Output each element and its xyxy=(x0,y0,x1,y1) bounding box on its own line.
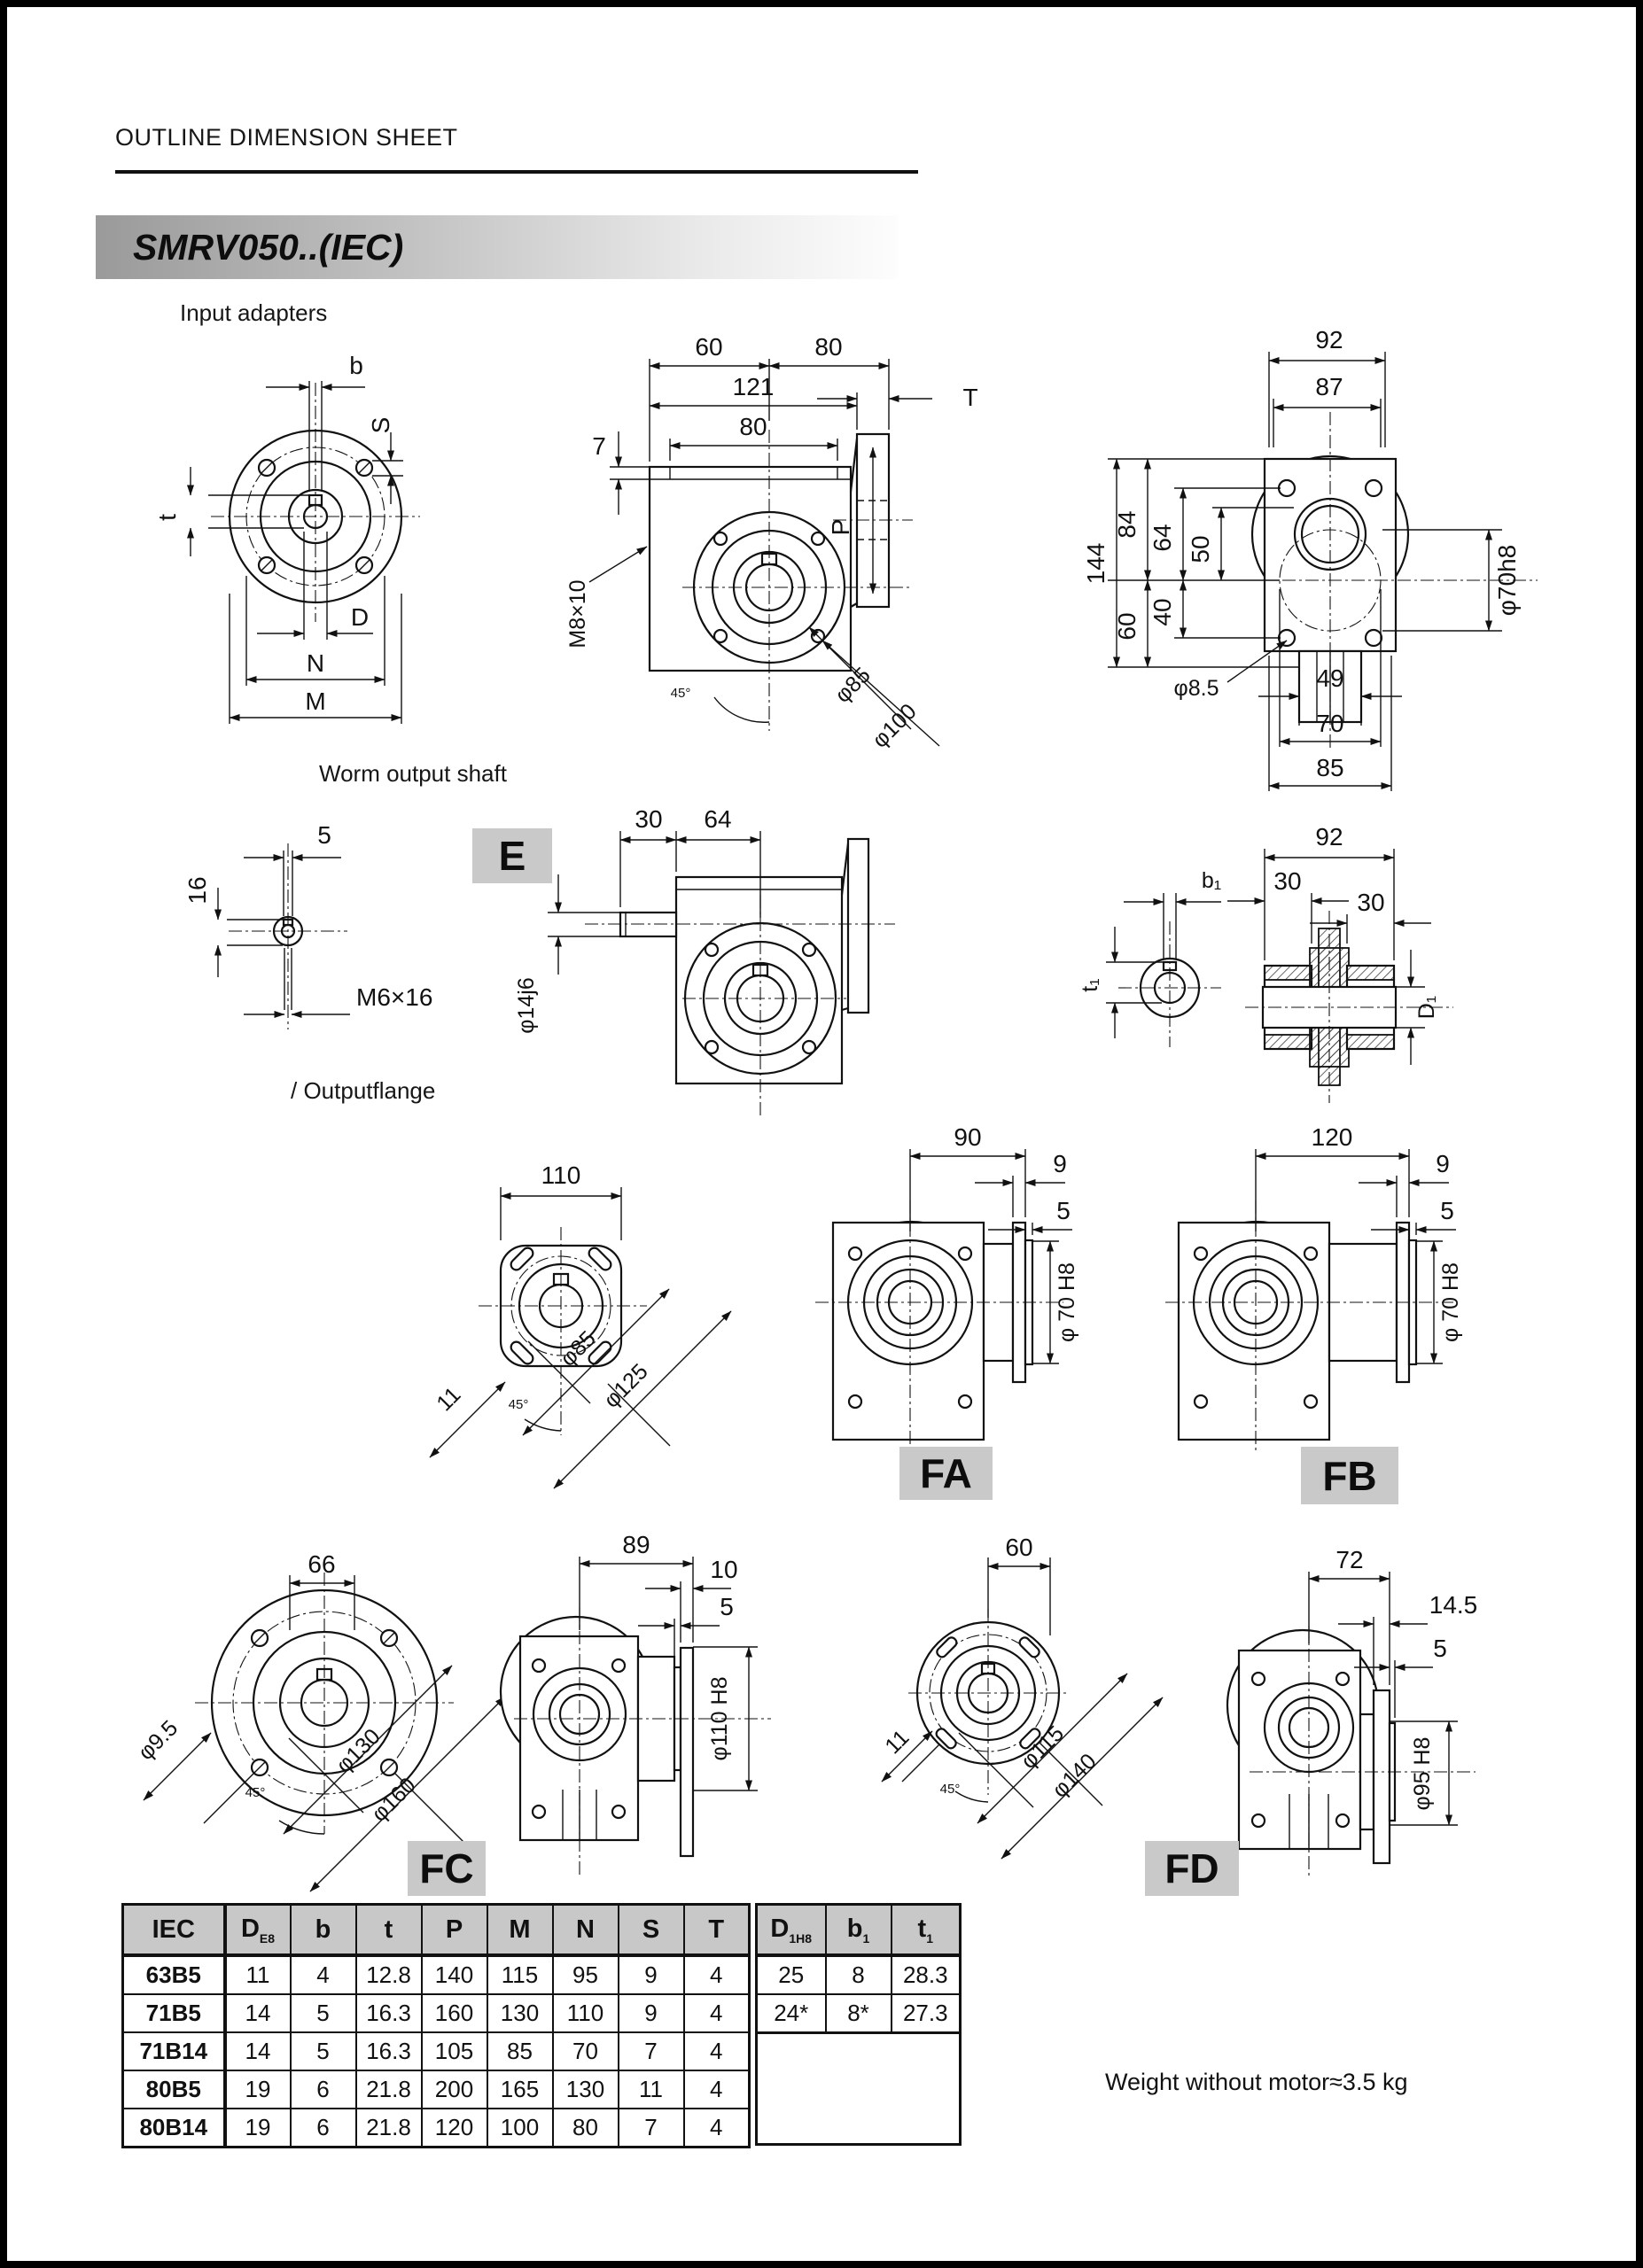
dim-phi70h8-fa: φ 70 H8 xyxy=(1055,1262,1079,1342)
cell: 9 xyxy=(619,1994,684,2032)
cell: 4 xyxy=(684,1955,750,1994)
cell: 7 xyxy=(619,2109,684,2148)
table-row: 71B5 14 5 16.3 160 130 110 9 4 xyxy=(123,1994,750,2032)
dim-84: 84 xyxy=(1113,510,1141,538)
cell: 27.3 xyxy=(892,1994,961,2033)
title-underline xyxy=(115,170,918,174)
fd-front-geometry xyxy=(908,1609,1068,1795)
dim-phi70h8-fb: φ 70 H8 xyxy=(1438,1262,1463,1342)
cell: 115 xyxy=(487,1955,553,1994)
col-p: P xyxy=(422,1905,487,1956)
dim-T: T xyxy=(962,384,977,411)
coupling-drawing: b₁ t₁ 92 30 xyxy=(1081,815,1604,1099)
dim-5-fd: 5 xyxy=(1433,1635,1447,1662)
cell: 21.8 xyxy=(356,2070,422,2109)
dim-t1: t₁ xyxy=(1078,978,1102,991)
cell: 16.3 xyxy=(356,1994,422,2032)
table-row: 63B5 11 4 12.8 140 115 95 9 4 xyxy=(123,1955,750,1994)
dim-10-fc: 10 xyxy=(710,1556,737,1583)
dim-7: 7 xyxy=(592,432,606,460)
worm-shaft-end-dimensions: 5 16 M6×16 xyxy=(183,821,432,1014)
cell: 8 xyxy=(826,1955,892,1994)
section-output-flange: / Outputflange xyxy=(291,1077,435,1105)
dim-s: S xyxy=(367,417,394,434)
dim-45deg-fd: 45° xyxy=(940,1782,961,1797)
dim-60-rear: 60 xyxy=(1113,612,1141,640)
dim-144: 144 xyxy=(1082,543,1110,585)
dim-30-right: 30 xyxy=(1357,889,1384,916)
col-d-e8: DE8 xyxy=(225,1905,291,1956)
cell: 28.3 xyxy=(892,1955,961,1994)
dim-m8x10: M8×10 xyxy=(565,579,590,648)
cell: 120 xyxy=(422,2109,487,2148)
cell: 24* xyxy=(757,1994,826,2033)
weight-note: Weight without motor≈3.5 kg xyxy=(1105,2069,1407,2096)
cell: 105 xyxy=(422,2032,487,2070)
cell-iec: 63B5 xyxy=(123,1955,225,1994)
dim-40: 40 xyxy=(1149,598,1176,625)
dim-m: M xyxy=(305,687,325,715)
cell: 21.8 xyxy=(356,2109,422,2148)
adapter-rear-view-drawing: 92 87 144 84 64 50 40 60 φ xyxy=(1055,306,1604,819)
dim-30-left: 30 xyxy=(1273,867,1301,895)
cell: 80 xyxy=(553,2109,619,2148)
cell: 95 xyxy=(553,1955,619,1994)
col-iec: IEC xyxy=(123,1905,225,1956)
table-row: 25 8 28.3 xyxy=(757,1955,961,1994)
table-row: 80B14 19 6 21.8 120 100 80 7 4 xyxy=(123,2109,750,2148)
fa-side-view-drawing: 90 9 5 φ 70 H8 xyxy=(798,1125,1179,1462)
cell: 4 xyxy=(291,1955,356,1994)
dim-phi110h8: φ110 H8 xyxy=(707,1677,732,1761)
cell: 19 xyxy=(225,2109,291,2148)
cell: 4 xyxy=(684,2032,750,2070)
dim-5-fb: 5 xyxy=(1440,1197,1454,1224)
dim-5-fc: 5 xyxy=(720,1593,734,1620)
cell: 4 xyxy=(684,2070,750,2109)
dim-9-fa: 9 xyxy=(1053,1150,1067,1177)
dim-89: 89 xyxy=(622,1531,650,1558)
dim-49: 49 xyxy=(1316,664,1343,692)
shaft-dimension-table: D1H8 b1 t1 25 8 28.3 24* 8* 27.3 xyxy=(755,1903,962,2146)
cell: 4 xyxy=(684,2109,750,2148)
cell: 6 xyxy=(291,2109,356,2148)
dim-110: 110 xyxy=(541,1161,581,1189)
dim-64: 64 xyxy=(704,805,731,833)
dim-5-fa: 5 xyxy=(1056,1197,1071,1224)
fc-side-view-drawing: 89 10 5 φ110 H8 xyxy=(514,1524,868,1914)
cell: 200 xyxy=(422,2070,487,2109)
cell: 4 xyxy=(684,1994,750,2032)
worm-shaft-side-view-drawing: 30 64 φ14j6 xyxy=(496,788,1046,1143)
cell: 165 xyxy=(487,2070,553,2109)
dim-64: 64 xyxy=(1149,524,1176,551)
col-b: b xyxy=(291,1905,356,1956)
model-title-bar: SMRV050..(IEC) xyxy=(96,215,898,279)
adapter-front-view-drawing: b S t D N M xyxy=(124,328,479,788)
dim-m6x16: M6×16 xyxy=(356,983,432,1011)
cell: 85 xyxy=(487,2032,553,2070)
dim-45deg-fc: 45° xyxy=(245,1785,266,1800)
cell: 130 xyxy=(553,2070,619,2109)
dim-66: 66 xyxy=(308,1550,335,1578)
cell: 110 xyxy=(553,1994,619,2032)
cell: 130 xyxy=(487,1994,553,2032)
dim-92: 92 xyxy=(1315,326,1343,353)
cell: 160 xyxy=(422,1994,487,2032)
dim-phi125: φ125 xyxy=(599,1359,653,1413)
fb-side-view-drawing: 120 9 5 φ 70 H8 xyxy=(1152,1125,1542,1462)
cell: 9 xyxy=(619,1955,684,1994)
dim-70: 70 xyxy=(1316,710,1343,737)
cell-iec: 80B14 xyxy=(123,2109,225,2148)
outline-dimension-sheet-page: OUTLINE DIMENSION SHEET SMRV050..(IEC) I… xyxy=(0,0,1643,2268)
badge-fd: FD xyxy=(1145,1841,1239,1896)
table-row: 80B5 19 6 21.8 200 165 130 11 4 xyxy=(123,2070,750,2109)
cell: 25 xyxy=(757,1955,826,1994)
col-s: S xyxy=(619,1905,684,1956)
iec-dimension-table: IEC DE8 b t P M N S T 63B5 11 4 12.8 140… xyxy=(121,1903,751,2148)
cell: 6 xyxy=(291,2070,356,2109)
cell: 14 xyxy=(225,1994,291,2032)
cell-iec: 80B5 xyxy=(123,2070,225,2109)
coupling-front-dimensions: b₁ t₁ xyxy=(1078,868,1221,1038)
dim-b: b xyxy=(349,352,363,379)
dim-30: 30 xyxy=(635,805,662,833)
dim-16: 16 xyxy=(183,876,211,904)
worm-shaft-end-geometry xyxy=(229,843,347,1029)
cell: 140 xyxy=(422,1955,487,1994)
dim-b1: b₁ xyxy=(1202,868,1221,893)
cell: 16.3 xyxy=(356,2032,422,2070)
coupling-front-geometry xyxy=(1118,921,1221,1047)
dim-n: N xyxy=(307,649,324,677)
output-flange-front-drawing: 110 11 φ85 φ125 45° xyxy=(354,1143,851,1533)
col-b1: b1 xyxy=(826,1905,892,1956)
fd-side-view-drawing: 72 14.5 5 φ95 H8 xyxy=(1236,1524,1600,1931)
dim-45deg-flange: 45° xyxy=(509,1397,529,1412)
dim-P: P xyxy=(827,519,854,536)
cell: 5 xyxy=(291,2032,356,2070)
table-header-row: IEC DE8 b t P M N S T xyxy=(123,1905,750,1956)
dim-50: 50 xyxy=(1187,535,1214,563)
dim-phi8-5: φ8.5 xyxy=(1174,676,1219,701)
dim-14-5: 14.5 xyxy=(1429,1591,1478,1619)
fa-geometry xyxy=(815,1200,1063,1453)
dim-80: 80 xyxy=(814,333,842,361)
cell: 7 xyxy=(619,2032,684,2070)
dim-phi70h8: φ70h8 xyxy=(1493,545,1521,616)
table-row xyxy=(757,2033,961,2145)
cell: 100 xyxy=(487,2109,553,2148)
dim-d: D xyxy=(351,603,369,631)
badge-fa: FA xyxy=(899,1447,993,1500)
page-title: OUTLINE DIMENSION SHEET xyxy=(115,124,458,151)
adapter-side-view-drawing: 60 80 121 80 7 T P M8×10 φ85 φ100 4 xyxy=(496,315,1010,784)
table-row: 71B14 14 5 16.3 105 85 70 7 4 xyxy=(123,2032,750,2070)
cell: 19 xyxy=(225,2070,291,2109)
worm-shaft-side-geometry xyxy=(585,839,895,1116)
dim-d1: D₁ xyxy=(1414,996,1439,1020)
col-m: M xyxy=(487,1905,553,1956)
col-d1h8: D1H8 xyxy=(757,1905,826,1956)
badge-fb: FB xyxy=(1301,1447,1398,1504)
dim-60-fd: 60 xyxy=(1005,1534,1032,1561)
cell: 8* xyxy=(826,1994,892,2033)
cell-iec: 71B5 xyxy=(123,1994,225,2032)
dim-phi14j6: φ14j6 xyxy=(514,977,539,1033)
dim-45deg: 45° xyxy=(671,686,691,701)
model-name: SMRV050..(IEC) xyxy=(96,227,403,268)
worm-shaft-end-drawing: 5 16 M6×16 xyxy=(160,797,496,1099)
section-input-adapters: Input adapters xyxy=(180,299,327,327)
cell: 5 xyxy=(291,1994,356,2032)
dim-121: 121 xyxy=(733,373,775,400)
cell: 12.8 xyxy=(356,1955,422,1994)
table-header-row: D1H8 b1 t1 xyxy=(757,1905,961,1956)
section-worm-output-shaft: Worm output shaft xyxy=(319,760,507,788)
cell: 70 xyxy=(553,2032,619,2070)
dim-60: 60 xyxy=(695,333,722,361)
table-row: 24* 8* 27.3 xyxy=(757,1994,961,2033)
empty-cell xyxy=(757,2033,961,2145)
dim-87: 87 xyxy=(1315,373,1343,400)
cell: 11 xyxy=(225,1955,291,1994)
col-t2: T xyxy=(684,1905,750,1956)
dim-5: 5 xyxy=(317,821,331,849)
cell: 11 xyxy=(619,2070,684,2109)
dim-9-fb: 9 xyxy=(1436,1150,1450,1177)
dim-11: 11 xyxy=(432,1382,465,1416)
dim-85: 85 xyxy=(1316,754,1343,781)
cell: 14 xyxy=(225,2032,291,2070)
dim-phi95h8: φ95 H8 xyxy=(1410,1737,1435,1811)
dim-80-inner: 80 xyxy=(739,413,767,440)
dim-phi140: φ140 xyxy=(1047,1749,1102,1803)
col-t: t xyxy=(356,1905,422,1956)
dim-90: 90 xyxy=(954,1123,981,1151)
dim-phi9-5: φ9.5 xyxy=(133,1715,183,1765)
dim-120: 120 xyxy=(1312,1123,1353,1151)
col-t1: t1 xyxy=(892,1905,961,1956)
dim-phi100: φ100 xyxy=(868,699,922,753)
dim-92-coupling: 92 xyxy=(1315,823,1343,850)
badge-fc: FC xyxy=(408,1841,486,1896)
fd-side-geometry xyxy=(1227,1626,1476,1878)
cell-iec: 71B14 xyxy=(123,2032,225,2070)
dim-72: 72 xyxy=(1335,1546,1363,1573)
fb-geometry xyxy=(1165,1200,1453,1453)
dim-t: t xyxy=(153,514,181,521)
col-n: N xyxy=(553,1905,619,1956)
